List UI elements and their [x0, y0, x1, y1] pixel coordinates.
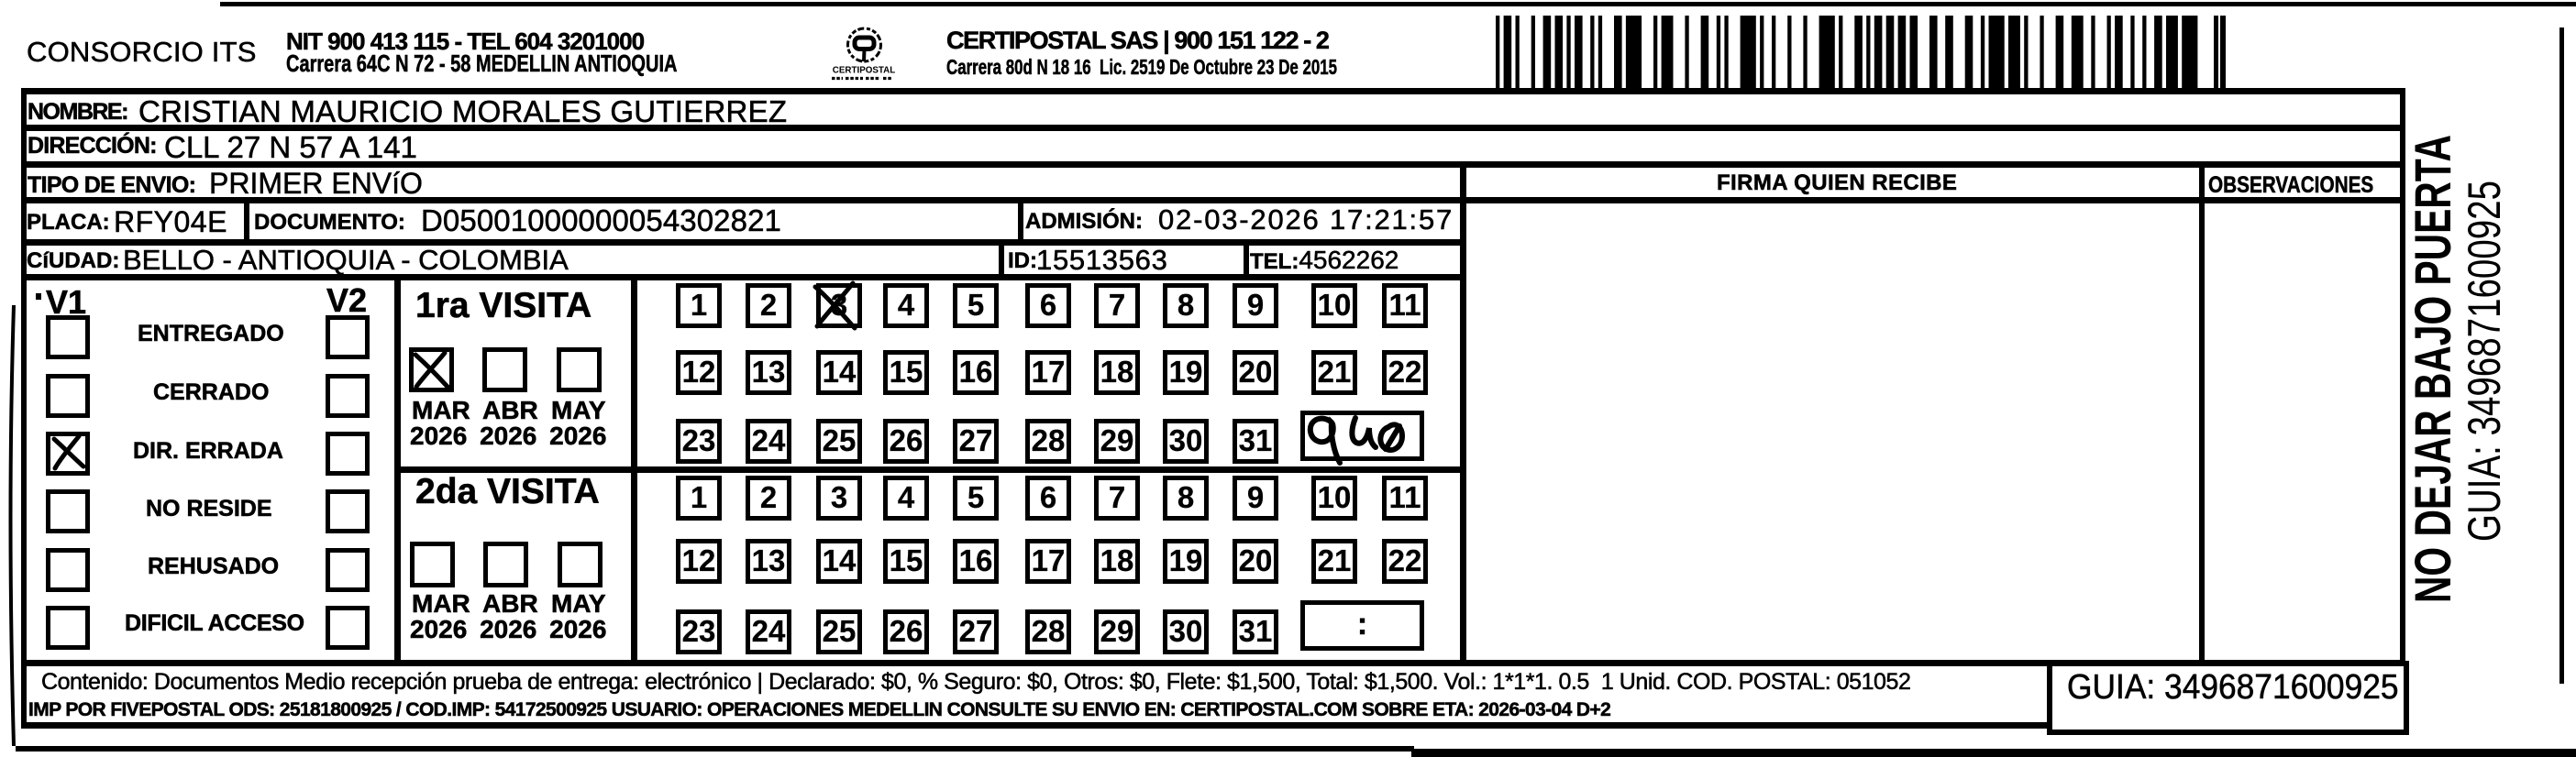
svg-text:NO DEJAR BAJO PUERTA: NO DEJAR BAJO PUERTA [2404, 135, 2461, 603]
svg-text:CERTIPOSTAL: CERTIPOSTAL [833, 66, 895, 76]
svg-text:GUIA: 3496871600925: GUIA: 3496871600925 [2459, 181, 2510, 542]
